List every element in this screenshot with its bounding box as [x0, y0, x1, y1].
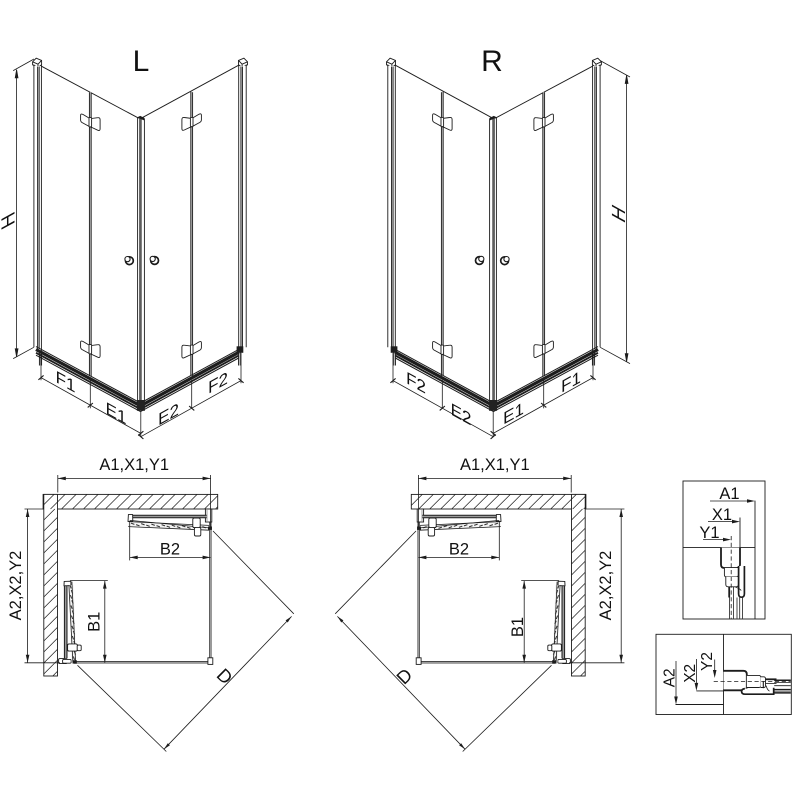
svg-text:B1: B1	[86, 612, 104, 632]
svg-text:A2,X2,Y2: A2,X2,Y2	[7, 551, 25, 621]
svg-text:A1: A1	[719, 485, 739, 503]
svg-text:B1: B1	[509, 617, 527, 637]
svg-text:L: L	[133, 45, 150, 78]
svg-text:A1,X1,Y1: A1,X1,Y1	[99, 456, 169, 474]
svg-text:A1,X1,Y1: A1,X1,Y1	[460, 456, 530, 474]
svg-text:B2: B2	[449, 541, 469, 559]
svg-text:Y1: Y1	[699, 524, 719, 542]
svg-text:A2,X2,Y2: A2,X2,Y2	[597, 551, 615, 621]
svg-text:R: R	[481, 45, 503, 78]
svg-text:X2: X2	[682, 664, 699, 683]
svg-text:X1: X1	[712, 506, 732, 524]
svg-text:B2: B2	[160, 541, 180, 559]
svg-text:A2: A2	[662, 668, 679, 687]
svg-text:Y2: Y2	[699, 652, 716, 671]
